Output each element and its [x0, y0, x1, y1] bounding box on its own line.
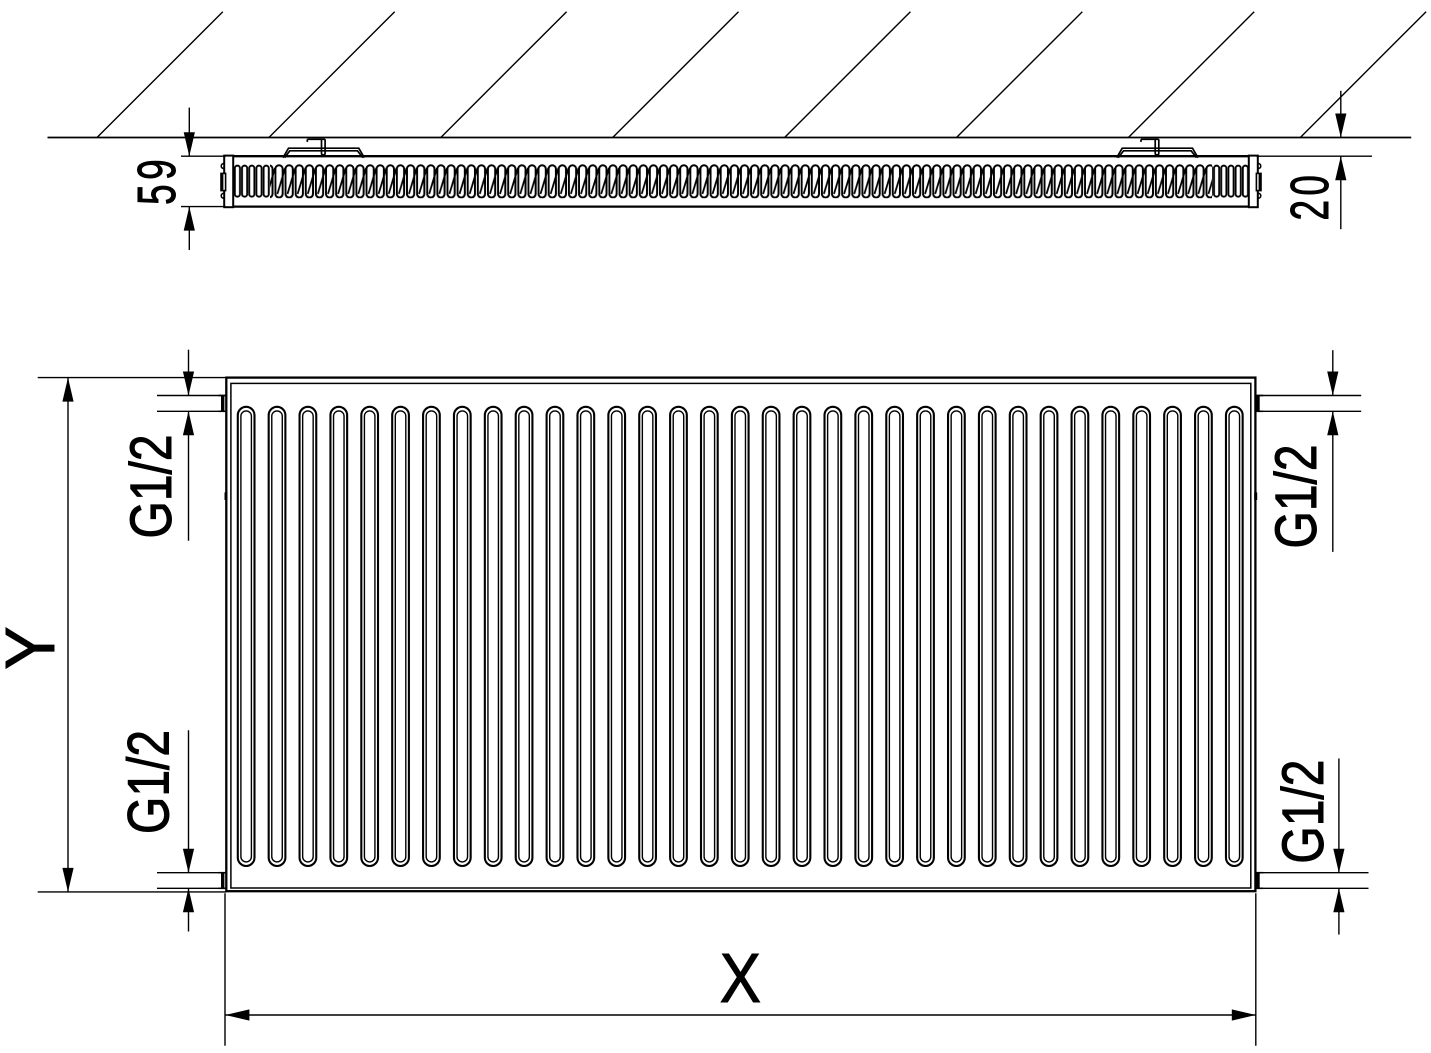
- svg-text:20: 20: [1279, 171, 1340, 221]
- svg-text:59: 59: [126, 155, 187, 205]
- svg-text:G1/2: G1/2: [1272, 760, 1336, 864]
- svg-text:G1/2: G1/2: [120, 435, 184, 539]
- svg-text:Y: Y: [0, 626, 70, 669]
- svg-text:G1/2: G1/2: [117, 730, 181, 834]
- svg-text:G1/2: G1/2: [1265, 445, 1329, 549]
- svg-text:X: X: [720, 938, 761, 1016]
